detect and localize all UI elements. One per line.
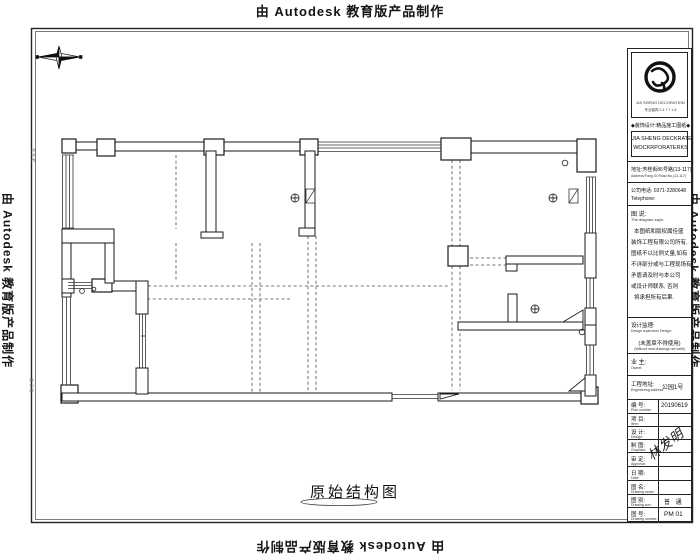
- row-en: Date:: [631, 476, 639, 480]
- site-label-en: Engineering address:: [631, 388, 664, 392]
- row-en: Approval:: [631, 462, 646, 466]
- margin-note-bottom: 装 订 线: [28, 378, 34, 392]
- signature: 林发明: [643, 423, 688, 464]
- row-en: Drawing name:: [631, 490, 655, 494]
- row-en: Plan number:: [631, 408, 652, 412]
- notes-line: 本图纸和版权属佳盛: [634, 227, 684, 235]
- watermark-left: 由 Autodesk 教育版产品制作: [2, 161, 17, 401]
- company-tagline: ◆装饰设计:精品施工图纸◆: [630, 122, 691, 129]
- seal-note-en: (Without seal drawings not valid): [628, 347, 691, 351]
- row-en: Item:: [631, 422, 639, 426]
- watermark-bottom: 由 Autodesk 教育版产品制作: [0, 538, 700, 557]
- margin-note-top: 会 签 栏: [30, 148, 36, 162]
- plan-title: 原始结构图: [300, 481, 410, 502]
- notes-title-en: The diagram says:: [631, 217, 664, 222]
- watermark-top: 由 Autodesk 教育版产品制作: [0, 1, 700, 20]
- title-block: JIA SHENG DECORATION 专业装饰 2 4 7 7 1 A ◆装…: [627, 48, 692, 522]
- north-compass-icon: [36, 46, 82, 69]
- logo-subcaption: 专业装饰 2 4 7 7 1 A: [632, 108, 689, 113]
- floor-plan: [0, 0, 700, 560]
- site-label-cn: 工程地址:: [631, 380, 655, 388]
- company-name-line1: JIA SHENG DECKRATE: [632, 136, 689, 142]
- row-value: 普 通: [664, 497, 684, 506]
- owner-label-en: Owner:: [631, 366, 642, 370]
- row-value: PM 01: [664, 511, 683, 518]
- company-name-line2: WOCKRPORATERKS: [632, 145, 689, 151]
- row-en: Drawing sort:: [631, 503, 652, 507]
- supervision-label-cn: 设计监理:: [631, 321, 655, 329]
- phone-en: Telephone:: [631, 196, 655, 202]
- supervision-label-en: Design supervisor Design:: [631, 329, 672, 333]
- beam-dashed-lines: [136, 155, 506, 393]
- address-en: Address:Fang Gi Road No.(13-117): [631, 174, 686, 178]
- notes-line: 或设计师联系, 否则: [631, 282, 678, 290]
- row-en: Design:: [631, 435, 643, 439]
- site-value: 公园1号: [662, 382, 683, 391]
- notes-line: 图纸不以比例丈量,如有: [631, 249, 688, 257]
- seal-note-cn: (未盖章不得使用): [628, 339, 691, 347]
- phone-cn: 公司电话: 0371-2280648: [631, 187, 686, 194]
- notes-line: 将承担所有后果.: [634, 293, 674, 301]
- interior-walls: [105, 151, 583, 330]
- company-seal-icon: [632, 53, 689, 103]
- address-cn: 地址:芳桂街86号路(13-117): [631, 166, 691, 173]
- logo-box: JIA SHENG DECORATION 专业装饰 2 4 7 7 1 A: [631, 52, 688, 118]
- logo-caption: JIA SHENG DECORATION: [632, 100, 689, 105]
- notes-line: 矛盾请及时与本公司: [631, 271, 681, 279]
- row-en: Drawing number:: [631, 517, 658, 521]
- plotted-drawing-sheet: 由 Autodesk 教育版产品制作 由 Autodesk 教育版产品制作 由 …: [0, 0, 700, 560]
- company-name-box: JIA SHENG DECKRATE WOCKRPORATERKS: [631, 131, 688, 157]
- notes-line: 装饰工程有限公司所有,: [631, 238, 688, 246]
- row-value: 20190619: [661, 403, 688, 409]
- notes-line: 不详部分或与工程现场有: [631, 260, 692, 268]
- owner-label-cn: 业 主:: [631, 357, 646, 366]
